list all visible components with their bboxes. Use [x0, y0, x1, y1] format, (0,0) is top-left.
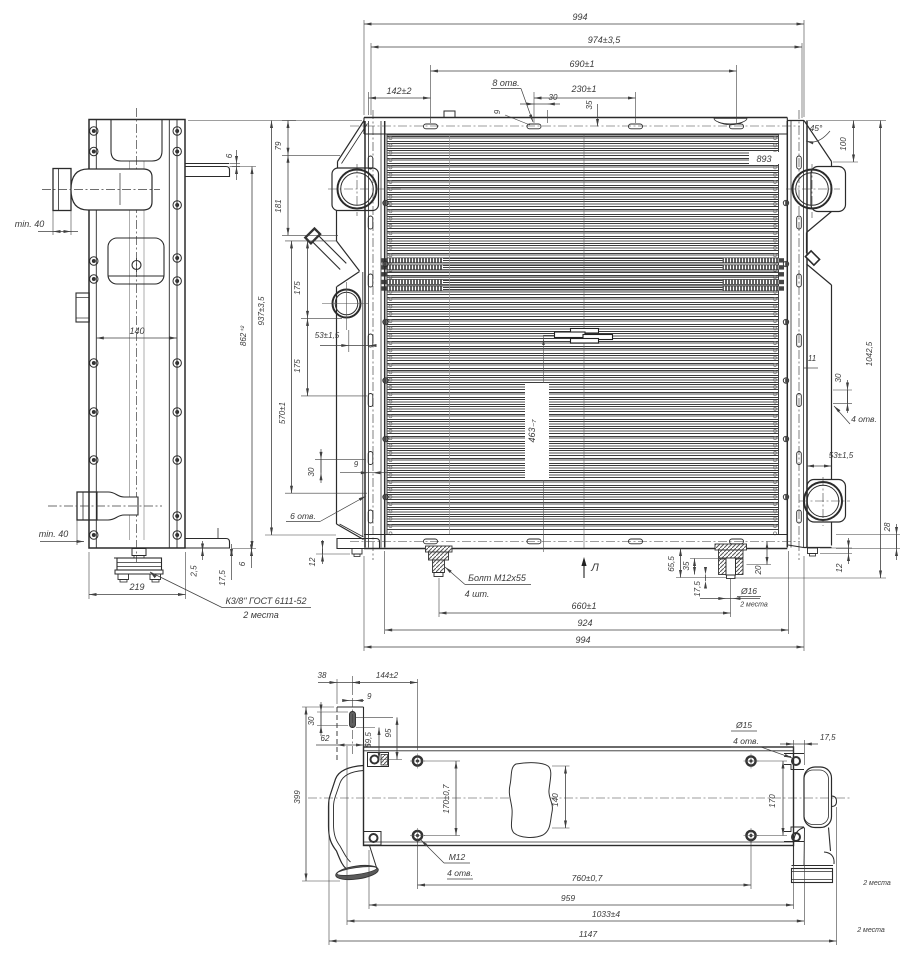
svg-text:690±1: 690±1 [570, 59, 595, 69]
svg-text:142±2: 142±2 [387, 86, 412, 96]
svg-text:38: 38 [318, 671, 327, 680]
svg-text:1042,5: 1042,5 [865, 341, 874, 366]
svg-text:4 отв.: 4 отв. [733, 736, 759, 746]
svg-text:20: 20 [754, 565, 763, 575]
svg-text:30: 30 [549, 93, 558, 102]
svg-text:53±1,5: 53±1,5 [829, 451, 854, 460]
svg-text:65,5: 65,5 [667, 556, 676, 572]
svg-text:1033±4: 1033±4 [592, 909, 621, 919]
svg-text:12: 12 [308, 557, 317, 566]
svg-text:959: 959 [561, 893, 575, 903]
svg-text:69,5: 69,5 [364, 732, 373, 748]
svg-text:140: 140 [551, 793, 560, 807]
svg-text:4 отв.: 4 отв. [447, 868, 473, 878]
svg-text:974±3,5: 974±3,5 [588, 35, 621, 45]
svg-text:17,5: 17,5 [693, 581, 702, 597]
svg-text:17,5: 17,5 [820, 733, 836, 742]
svg-text:30: 30 [307, 716, 316, 725]
svg-text:М12: М12 [449, 852, 466, 862]
svg-text:11: 11 [808, 354, 816, 363]
svg-text:140: 140 [129, 326, 144, 336]
svg-text:Болт М12х55: Болт М12х55 [468, 573, 527, 583]
svg-text:53±1,5: 53±1,5 [315, 331, 340, 340]
svg-text:17,5: 17,5 [218, 570, 227, 586]
svg-text:170: 170 [768, 794, 777, 808]
svg-text:6 отв.: 6 отв. [290, 511, 316, 521]
svg-text:463₋₇: 463₋₇ [527, 419, 537, 443]
svg-text:100: 100 [839, 137, 848, 151]
svg-text:6: 6 [225, 153, 234, 158]
svg-text:862⁺²: 862⁺² [239, 326, 248, 347]
svg-text:219: 219 [128, 582, 144, 592]
svg-text:144±2: 144±2 [376, 671, 399, 680]
svg-text:min. 40: min. 40 [39, 529, 69, 539]
svg-text:181: 181 [274, 199, 283, 212]
svg-text:min. 40: min. 40 [15, 219, 45, 229]
svg-text:4 отв.: 4 отв. [851, 414, 877, 424]
svg-text:570±1: 570±1 [278, 402, 287, 424]
svg-text:2 места: 2 места [862, 880, 891, 887]
svg-text:399: 399 [293, 790, 302, 804]
svg-text:760±0,7: 760±0,7 [572, 873, 603, 883]
svg-text:2,5: 2,5 [190, 565, 199, 578]
svg-text:95: 95 [384, 728, 393, 737]
svg-text:994: 994 [572, 12, 587, 22]
svg-text:45°: 45° [810, 123, 823, 133]
svg-text:6: 6 [238, 561, 247, 566]
svg-text:79: 79 [274, 141, 283, 150]
svg-text:9: 9 [367, 692, 372, 701]
svg-text:28: 28 [883, 522, 892, 532]
svg-text:9: 9 [493, 109, 502, 114]
svg-text:175: 175 [293, 359, 302, 373]
svg-text:35: 35 [682, 561, 691, 570]
svg-text:12: 12 [835, 563, 844, 572]
svg-text:9: 9 [354, 460, 359, 469]
svg-text:8 отв.: 8 отв. [492, 78, 519, 88]
svg-text:175: 175 [293, 281, 302, 295]
svg-text:170±0,7: 170±0,7 [442, 784, 451, 813]
svg-text:2 места: 2 места [856, 927, 885, 934]
svg-text:994: 994 [575, 635, 590, 645]
svg-text:924: 924 [577, 618, 592, 628]
svg-text:30: 30 [307, 467, 316, 476]
svg-text:893: 893 [756, 154, 771, 164]
svg-text:30: 30 [834, 373, 843, 382]
svg-text:2 места: 2 места [242, 610, 278, 620]
svg-text:К3/8" ГОСТ 6111-52: К3/8" ГОСТ 6111-52 [226, 596, 307, 606]
svg-text:660±1: 660±1 [572, 601, 597, 611]
svg-text:Ø15: Ø15 [735, 720, 752, 730]
svg-text:1147: 1147 [579, 929, 598, 939]
svg-text:2 места: 2 места [739, 602, 768, 609]
svg-text:937±3,5: 937±3,5 [257, 296, 266, 325]
svg-text:62: 62 [321, 734, 330, 743]
svg-text:Л: Л [590, 562, 599, 574]
svg-text:4 шт.: 4 шт. [465, 589, 490, 599]
svg-text:230±1: 230±1 [571, 84, 597, 94]
svg-text:Ø16: Ø16 [740, 586, 757, 596]
svg-text:35: 35 [585, 100, 594, 109]
